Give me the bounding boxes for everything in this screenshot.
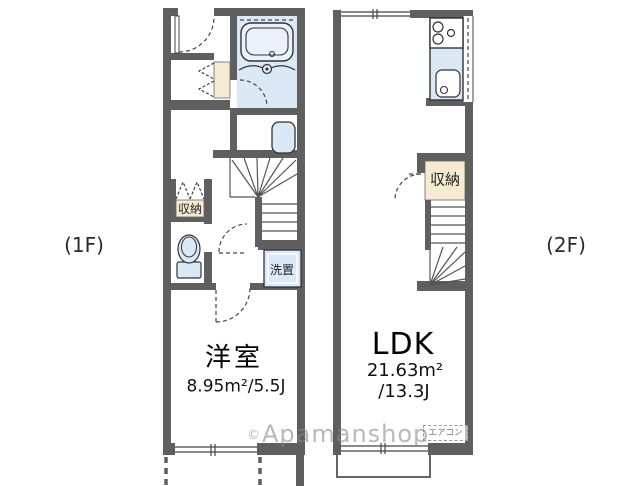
floor1-label: (1F) bbox=[64, 235, 104, 255]
window-1f-bottom bbox=[175, 444, 257, 456]
closet-door-arc bbox=[395, 174, 421, 200]
entrance-closet bbox=[199, 62, 230, 98]
bathroom-unit bbox=[237, 16, 297, 108]
stove-icon bbox=[430, 18, 463, 48]
entrance-door-arc bbox=[175, 16, 214, 53]
floor-plan-canvas: (1F) (2F) 洋室 8.95m²/5.5J LDK 21.63m² /13… bbox=[0, 0, 640, 486]
bathtub-icon bbox=[241, 23, 293, 61]
washbasin-icon bbox=[272, 122, 295, 153]
bifold-door-icon bbox=[199, 63, 214, 97]
aircon-label: エアコン bbox=[423, 425, 468, 441]
window-2f-top bbox=[341, 9, 410, 19]
kitchen-unit bbox=[430, 18, 463, 100]
hall-door-arc bbox=[219, 224, 247, 253]
laundry-label: 洗置 bbox=[270, 264, 294, 276]
window-2f-side bbox=[463, 16, 473, 102]
room1-name: 洋室 bbox=[205, 345, 263, 371]
room2-name: LDK bbox=[372, 330, 435, 360]
kitchen-sink-icon bbox=[436, 70, 460, 97]
floor2-label: (2F) bbox=[546, 235, 586, 255]
stairs-1f bbox=[230, 158, 297, 231]
room1-size: 8.95m²/5.5J bbox=[186, 379, 285, 396]
bifold-door-icon bbox=[176, 182, 204, 199]
bedroom-door-arc bbox=[216, 288, 250, 322]
closet2-label: 収納 bbox=[430, 173, 460, 188]
closet1-label: 収納 bbox=[178, 203, 202, 215]
room2-size-m2: 21.63m² bbox=[367, 362, 443, 380]
watermark: ©Apamanshop bbox=[247, 420, 429, 448]
stairs-2f bbox=[430, 207, 465, 285]
balcony-outline bbox=[337, 455, 430, 477]
watermark-text: Apamanshop bbox=[262, 420, 429, 448]
site-boundary-lines bbox=[166, 457, 260, 486]
room2-size-j: /13.3J bbox=[378, 383, 429, 401]
toilet-icon bbox=[177, 235, 201, 278]
watermark-prefix: © bbox=[247, 428, 261, 443]
